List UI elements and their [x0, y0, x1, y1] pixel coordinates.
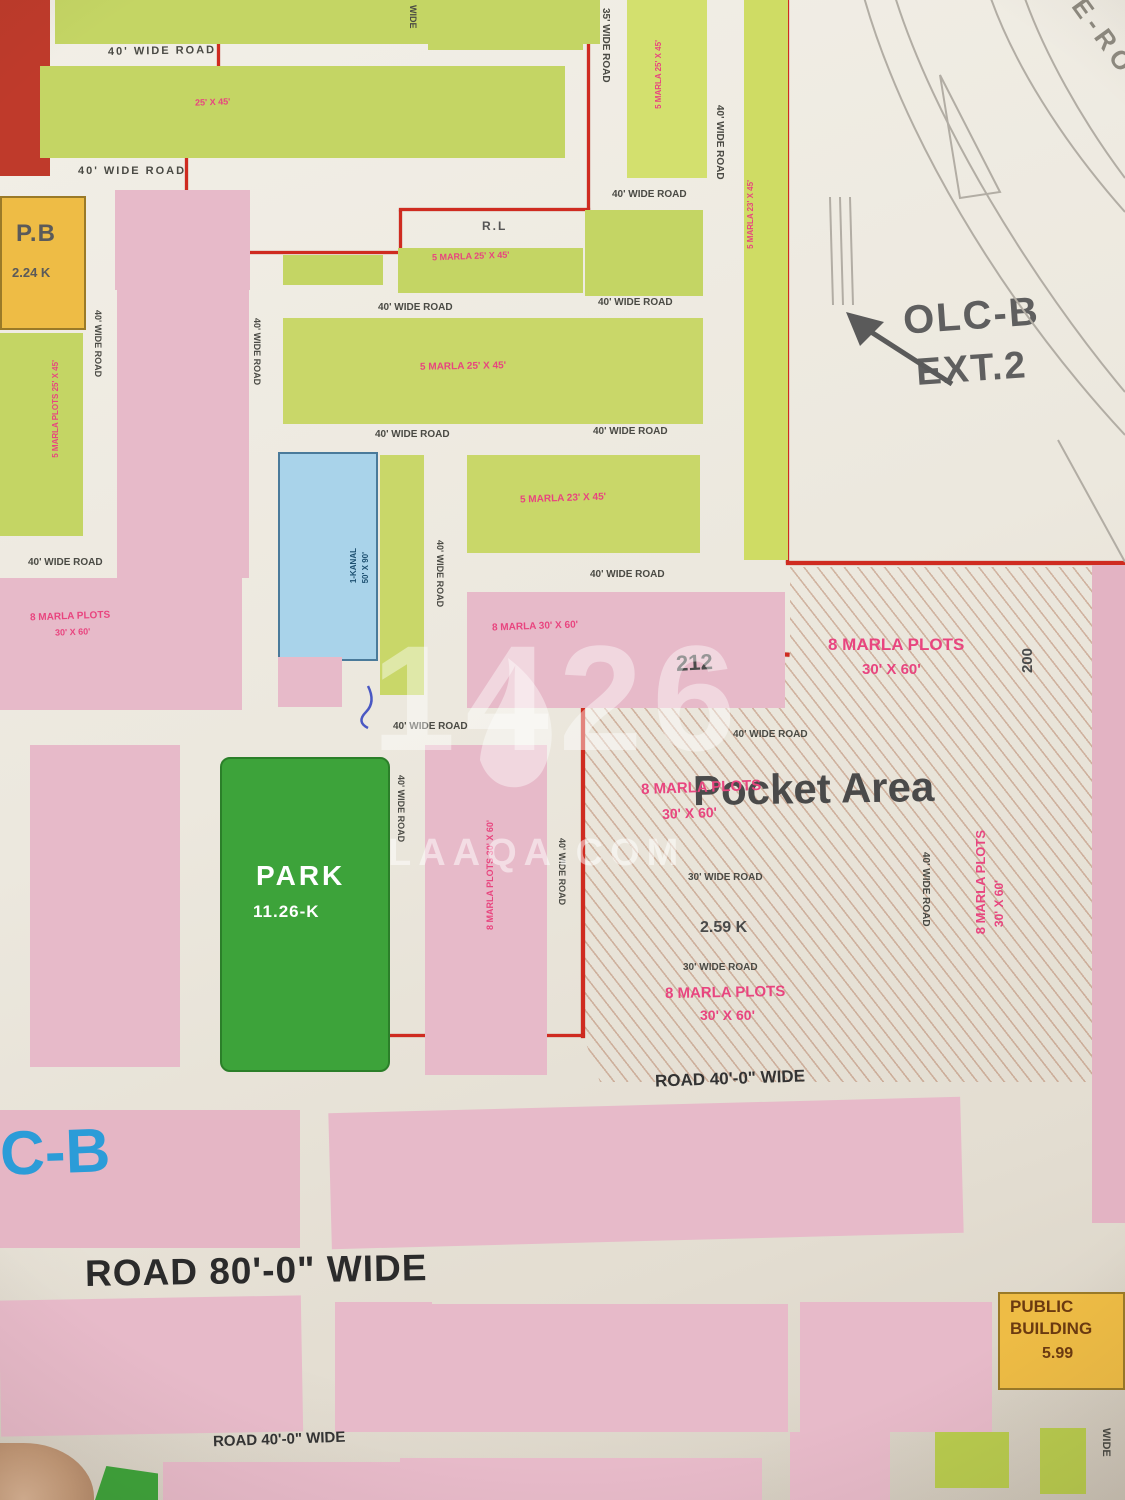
marla-note: 5 MARLA 23' X 45' [747, 180, 755, 249]
plots-179 [883, 948, 915, 1070]
green-795 [935, 1432, 1009, 1488]
plots-169 [583, 948, 613, 1070]
curved-road-lines [830, 0, 1125, 562]
road-label: 40' WIDE ROAD [593, 427, 668, 437]
bottom-block-669 [800, 1302, 992, 1432]
road-label: ROAD 80'-0" WIDE [85, 1249, 428, 1292]
pb-block [0, 196, 86, 330]
road-label: 30' WIDE ROAD [688, 873, 763, 883]
bottom-edge-718 [163, 1462, 400, 1500]
olcb-partial-label: C-B [0, 1120, 111, 1186]
road-label: 40' WIDE ROAD [252, 318, 261, 385]
kanal-note: 50' X 90' [362, 552, 370, 583]
road-label: WIDE [1100, 1428, 1111, 1457]
green-strip-left [0, 333, 83, 536]
bottom-block-645 [0, 1295, 303, 1436]
bottom-block-654 [335, 1302, 432, 1432]
marla-note: 30' X 60' [662, 805, 717, 821]
strip-212 [744, 0, 788, 560]
bottom-mid-block [328, 1097, 963, 1249]
olcb-title: OLC-B [902, 291, 1041, 340]
marla-note: 8 MARLA PLOTS [665, 984, 786, 1001]
road-label: ROAD 40'-0" WIDE [213, 1430, 346, 1450]
road-label: 40' WIDE ROAD [920, 852, 930, 927]
road-label: DE-RO [1053, 0, 1125, 81]
pb-label: P.B [16, 222, 56, 246]
marla-note: 5 MARLA 25' X 45' [655, 40, 663, 109]
area-label: 2.59 K [700, 920, 747, 936]
road-label: 30' WIDE ROAD [683, 963, 758, 973]
public-building-label: PUBLIC [1010, 1298, 1073, 1315]
left-block-235 [30, 745, 180, 1067]
pb-size: 2.24 K [12, 266, 50, 279]
pink-353-351 [278, 657, 342, 707]
right-strip-edge [1092, 653, 1125, 1223]
map-photo: 40' WIDE ROAD40' WIDE ROAD40' WIDE ROAD4… [0, 0, 1125, 1500]
pen-mark-icon [361, 686, 371, 728]
plots-157 [945, 1003, 1065, 1039]
pink-353-92 [115, 190, 250, 290]
pocket-grid-a [790, 570, 1088, 640]
green-212-62 [467, 455, 700, 553]
marla-note: 30' X 60' [993, 880, 1005, 927]
park-size: 11.26-K [253, 903, 320, 920]
road-label: 40' WIDE ROAD [93, 310, 102, 377]
road-label: 40' WIDE ROAD [612, 190, 687, 200]
plot-label: 200 [1020, 648, 1035, 673]
marla-note: 8 MARLA PLOTS [828, 636, 964, 653]
bottom-edge-784 [790, 1432, 890, 1500]
park-label: PARK [256, 862, 345, 890]
green-353-34 [283, 255, 383, 285]
marla-note: 30' X 60' [700, 1008, 755, 1022]
marla-note: 5 MARLA 25' X 45' [420, 361, 506, 373]
pink-354 [178, 578, 242, 648]
green-wedge-plot [95, 1466, 158, 1500]
finger-photo [0, 1443, 94, 1500]
bottom-block-656 [432, 1304, 788, 1432]
pink-356-row [0, 648, 242, 710]
marla-note: 5 MARLA PLOTS 25' X 45' [52, 360, 60, 458]
road-label: 40' WIDE ROAD [375, 430, 450, 440]
road-label: 40' WIDE ROAD [378, 303, 453, 313]
right-strip-326 [1092, 565, 1125, 653]
olcb-subtitle: EXT.2 [915, 346, 1029, 392]
boundary-red-line [399, 208, 590, 211]
road-label: WIDE [408, 5, 417, 29]
rl-label: R.L [482, 220, 507, 232]
marla-note: 30' X 60' [55, 627, 91, 637]
public-building-size: 5.99 [1042, 1346, 1073, 1362]
road-label: 40' WIDE ROAD [590, 570, 665, 580]
green-814 [1040, 1428, 1086, 1494]
watermark-site: LAAQA.COM [388, 832, 685, 875]
road-label: 35' WIDE ROAD [600, 8, 610, 83]
green-band-2 [40, 66, 565, 158]
block-43c [627, 0, 707, 178]
public-building-label: BUILDING [1010, 1320, 1092, 1337]
road-label: 40' WIDE ROAD [108, 45, 216, 58]
road-label: 40' WIDE ROAD [78, 166, 186, 177]
road-label: 40' WIDE ROAD [28, 558, 103, 568]
green-212-44 [585, 210, 703, 296]
green-212-43 [428, 0, 583, 50]
road-label: ROAD 40'-0" WIDE [655, 1067, 806, 1089]
boundary-red-line [786, 561, 1125, 565]
plots-147 [935, 740, 1065, 778]
marla-note: 8 MARLA PLOTS [974, 830, 987, 934]
kanal-note: 1-KANAL [350, 548, 358, 583]
bottom-edge-725 [400, 1458, 762, 1500]
pink-353-pairs [117, 290, 249, 578]
watermark-digits: 1426 [372, 612, 746, 785]
marla-note: 30' X 60' [862, 662, 921, 677]
marla-note: 25' X 45' [195, 97, 231, 107]
road-label: 40' WIDE ROAD [714, 105, 724, 180]
road-label: 40' WIDE ROAD [598, 298, 673, 308]
road-label: 40' WIDE ROAD [435, 540, 444, 607]
